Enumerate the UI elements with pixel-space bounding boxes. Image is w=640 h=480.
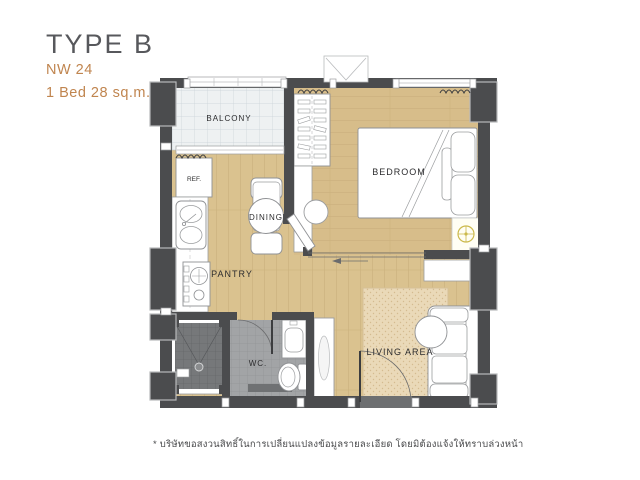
stool (304, 200, 328, 224)
refrigerator-label: REF. (187, 176, 201, 183)
bedroom-label: BEDROOM (372, 167, 426, 177)
floor-drain (195, 363, 203, 371)
balcony-label: BALCONY (206, 114, 251, 123)
side-table (415, 316, 447, 348)
floor-plan: BALCONY BEDROOM DINING PANTRY WC. LIVING… (0, 0, 640, 480)
stove (183, 262, 210, 306)
disclaimer-footnote: * บริษัทขอสงวนสิทธิ์ในการเปลี่ยนแปลงข้อม… (153, 437, 523, 452)
shower-room (170, 318, 228, 394)
floorplan-page: TYPE B NW 24 1 Bed 28 sq.m. (0, 0, 640, 480)
wc-label: WC. (249, 359, 268, 368)
living-area-label: LIVING AREA (366, 347, 433, 357)
pillow (451, 175, 475, 215)
dining-chair (251, 233, 282, 254)
soap-ledge (177, 369, 189, 377)
vanity-sink (282, 320, 306, 358)
pantry-label: PANTRY (211, 269, 253, 279)
ceiling-light-symbol (458, 226, 474, 242)
bed-bolster (442, 148, 452, 200)
balcony-railing (188, 77, 286, 87)
kitchen-sink (176, 201, 206, 249)
entrance-threshold (360, 396, 412, 408)
toilet (278, 363, 307, 391)
dining-label: DINING (249, 213, 283, 222)
ac-ledge (324, 56, 368, 82)
bedroom-window (396, 79, 474, 87)
tv-console (424, 260, 475, 281)
pillow (451, 132, 475, 172)
balcony-sliding-door (176, 146, 284, 154)
console-cabinet (314, 318, 334, 398)
